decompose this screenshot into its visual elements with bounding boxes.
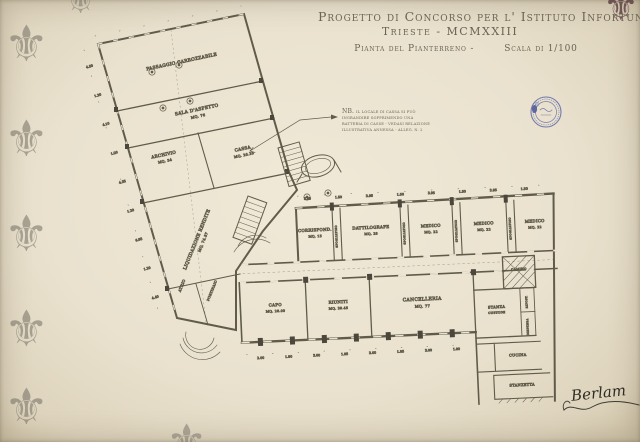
central-stairs: [233, 142, 341, 252]
scale-label: Scala di 1/100: [504, 44, 577, 54]
title-line-3: Pianta del Pianterreno - Scala di 1/100: [312, 44, 620, 54]
room-dattilografe: DATTILOGRAFEMQ. 28: [352, 224, 390, 237]
room-spogliatoio-4: SPOGLIATOIO: [508, 217, 513, 240]
dimension-value: 1.50: [459, 189, 466, 193]
dimension-value: 3.95: [366, 194, 373, 198]
dimension-value: 3.00: [313, 353, 320, 357]
margin-note: NB. IL LOCALE DI CASSA SI PUÒ INGRANDIRE…: [342, 109, 450, 133]
room-passaggio-carrozzabile: PASSAGGIO CARROZZABILE: [146, 53, 218, 73]
dimension-value: 1.20: [94, 92, 102, 98]
dimension-value: 3.00: [369, 351, 376, 355]
dimension-value: 3.95: [428, 191, 435, 195]
room-riuniti: RIUNITIMQ. 39.45: [328, 299, 348, 311]
room-capo: CAPOMQ. 28.00: [265, 302, 285, 314]
dimension-labels-right: 3.951.503.951.503.951.503.951.502.001.80…: [250, 187, 535, 360]
room-stanzetta: STANZETTA: [509, 383, 535, 388]
oval-vestibule: [299, 151, 337, 181]
dimension-value: 6.95: [135, 237, 143, 243]
room-liquidazione-rendite: LIQUIDAZIONE RENDITEMQ. 74.57: [183, 209, 217, 273]
blueprint-sheet: PASSAGGIO CARROZZABILESALA D'ASPETTOMQ. …: [0, 0, 640, 442]
room-medico-2: MEDICOMQ. 22: [474, 220, 495, 232]
room-atrio: ATRIO: [177, 279, 186, 294]
room-medico-3: MEDICOMQ. 22: [525, 218, 546, 230]
room-stanza-custode: STANZACUSTODE: [488, 305, 506, 315]
dimension-value: 1.50: [335, 195, 342, 199]
dimension-value: 1.80: [285, 355, 292, 359]
room-cassa: CASSAMQ. 26.28: [232, 144, 254, 159]
dimension-value: 2.00: [257, 356, 264, 360]
dimension-value: 1.80: [453, 347, 460, 351]
room-dispensa: DISPENSA: [525, 318, 530, 335]
room-portinaio: PORTINAIO: [206, 280, 218, 302]
approval-stamp: [531, 97, 561, 127]
dimension-value: 1.50: [397, 192, 404, 196]
room-sala-aspetto: SALA D'ASPETTOMQ. 76: [175, 103, 221, 123]
dimension-labels-left: 4.501.204.101.204.351.206.951.204.40: [86, 64, 160, 301]
room-spogliatoio-1: SPOGLIATOIO: [334, 225, 339, 248]
note-prefix: NB.: [342, 109, 354, 115]
dimension-value: 3.00: [425, 348, 432, 352]
dimension-value: 1.85: [341, 352, 348, 356]
room-archivio: ARCHIVIOMQ. 34: [150, 149, 178, 166]
room-ripostiglio: RIPOST.: [524, 295, 529, 308]
dimension-value: 1.20: [110, 150, 118, 156]
room-spogliatoio-3: SPOGLIATOIO: [454, 220, 459, 243]
dimension-value: 4.10: [102, 121, 110, 127]
note-line: ILLUSTRATIVA ANNESSA - ALLEG. N. 2: [342, 127, 450, 133]
dimension-value: 4.35: [118, 179, 126, 185]
dimension-value: 1.50: [521, 187, 528, 191]
room-spogliatoio-2: SPOGLIATOIO: [402, 222, 407, 245]
dimension-value: 1.20: [143, 266, 151, 272]
room-cucina: CUCINA: [509, 353, 527, 358]
dimension-value: 4.40: [151, 294, 159, 300]
dimension-value: 4.50: [86, 64, 94, 70]
dimension-value: 1.20: [127, 208, 135, 214]
plan-name: Pianta del Pianterreno -: [354, 44, 474, 54]
room-cancelleria: CANCELLERIAMQ. 77: [403, 296, 443, 310]
dimension-value: 1.85: [397, 349, 404, 353]
dimension-value: 3.95: [490, 188, 497, 192]
entrance-steps: [180, 332, 220, 360]
dimension-value: 3.95: [304, 196, 311, 200]
left-wing: [98, 14, 297, 360]
title-line-1: Progetto di Concorso per l' Istituto Inf…: [318, 9, 626, 24]
service-rooms: [472, 255, 553, 404]
title-line-2: Trieste - MCMXXIII: [318, 25, 582, 38]
floor-plan-drawing: PASSAGGIO CARROZZABILESALA D'ASPETTOMQ. …: [0, 0, 640, 442]
room-corrispondenza: CORRISPOND.MQ. 15: [298, 227, 332, 240]
right-wing: [235, 184, 562, 414]
room-camino: CAMINO: [511, 267, 527, 272]
room-medico-1: MEDICOMQ. 22: [421, 223, 442, 235]
title-block: Progetto di Concorso per l' Istituto Inf…: [318, 9, 626, 54]
